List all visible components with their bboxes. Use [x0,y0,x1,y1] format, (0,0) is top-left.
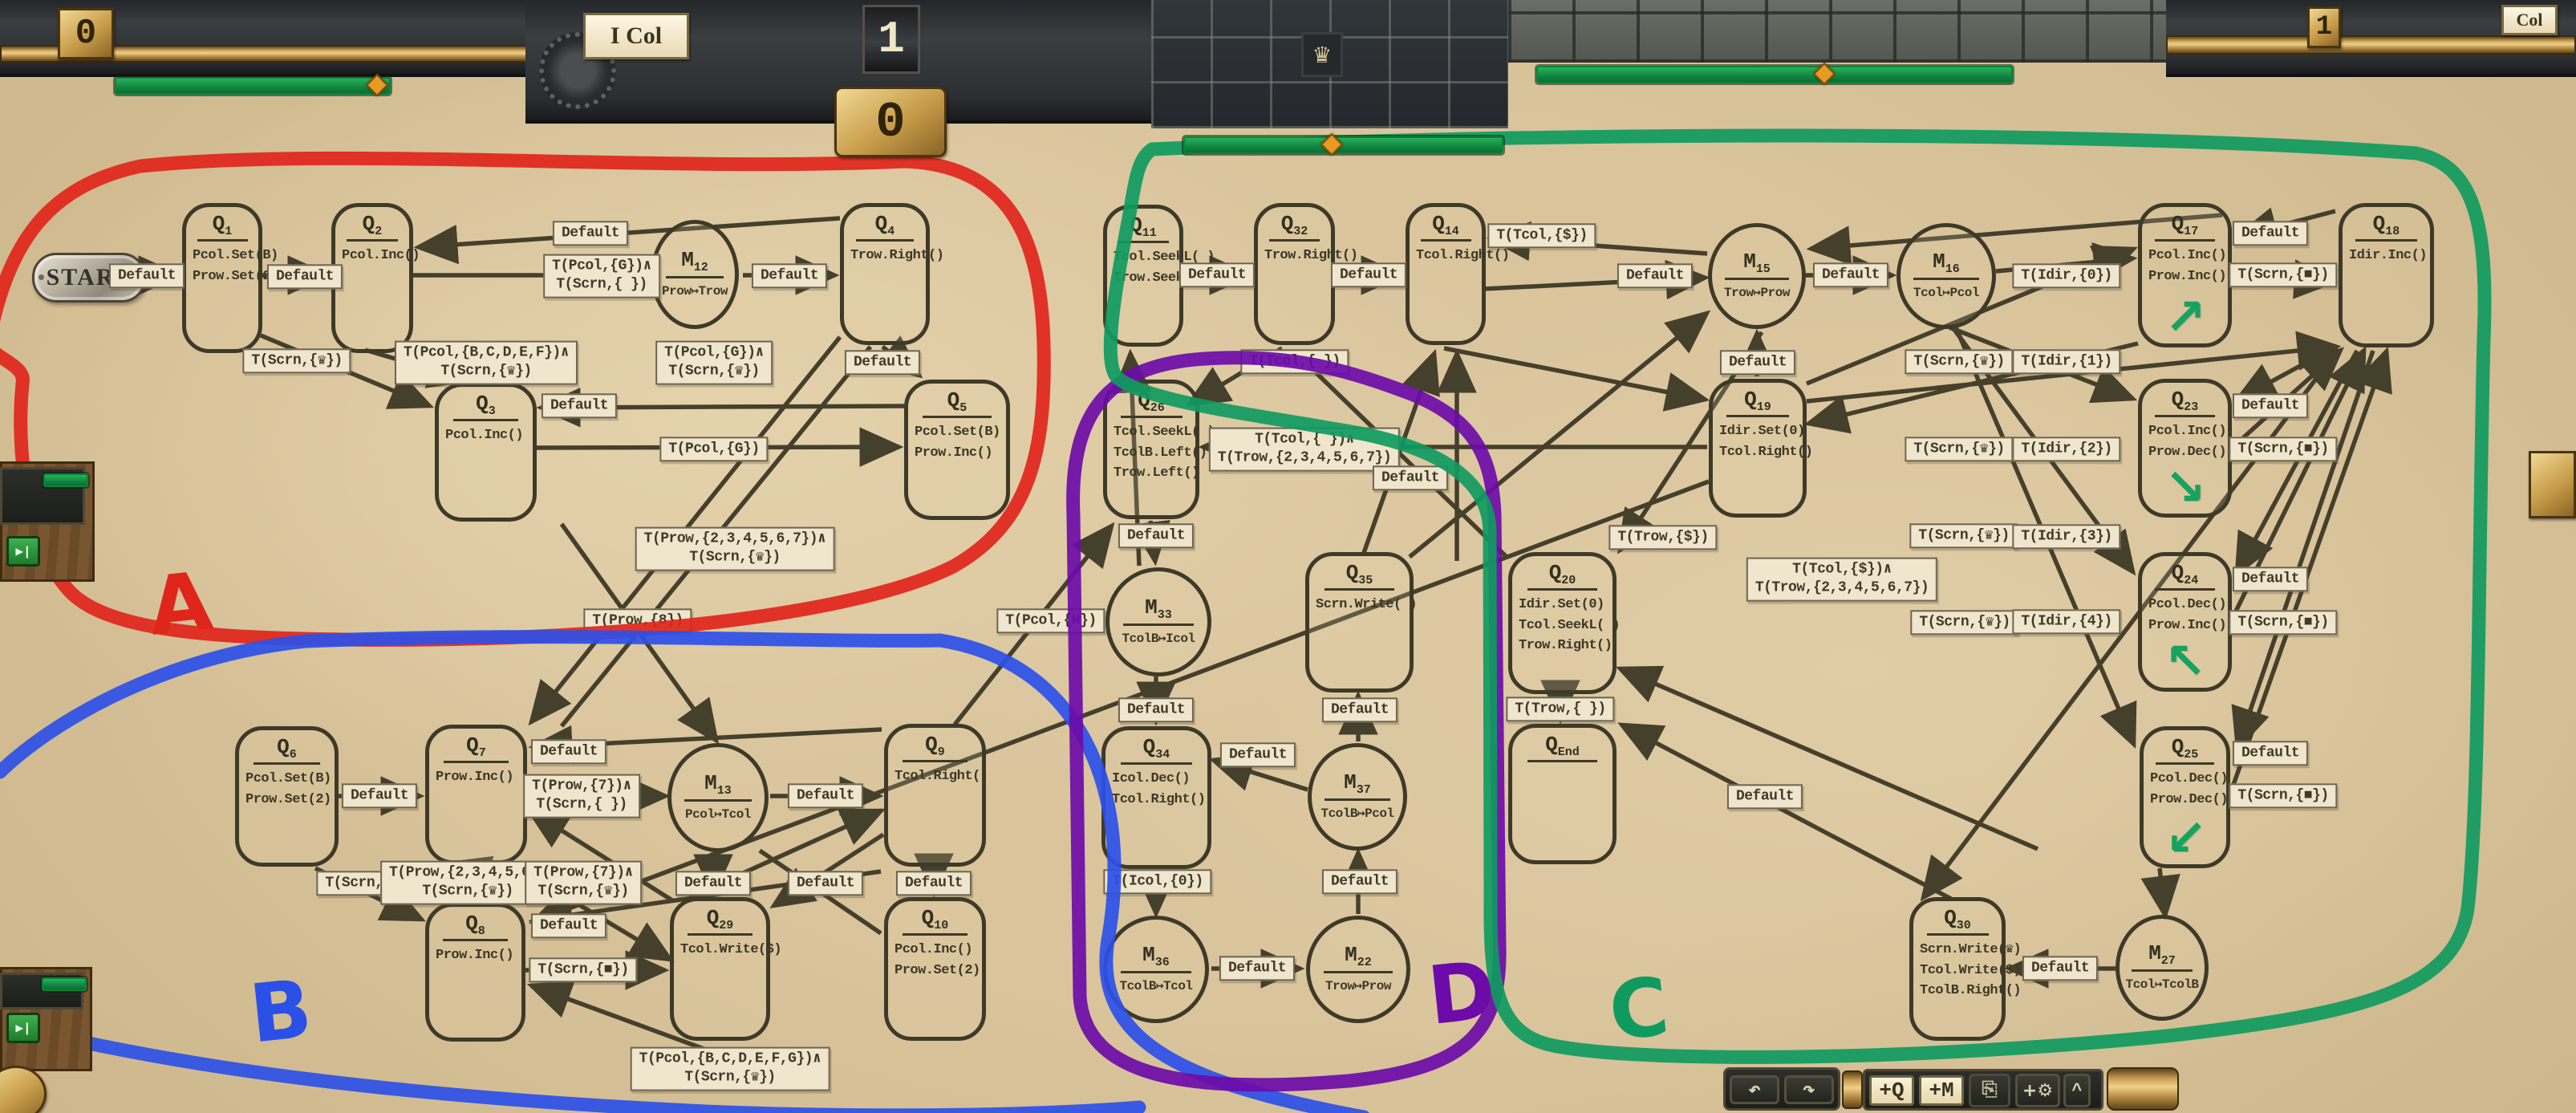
default-transition-label[interactable]: Default [1322,869,1398,894]
pipe-top-right [2166,35,2576,55]
default-transition-label[interactable]: Default [531,739,606,764]
node-operations: Trow.Right() [844,242,926,266]
node-operations: Tcol.SeekL( )TcolB.Left()Trow.Left() [1107,418,1195,484]
condition-label[interactable]: T(Pcol,{G}) [659,437,768,461]
node-Q35[interactable]: Q35Scrn.Write( ) [1305,552,1414,693]
condition-label[interactable]: T(Prow,{7})∧T(Scrn,{♛}) [525,861,642,905]
node-Q20[interactable]: Q20Idir.Set(0)Tcol.SeekL( )Trow.Right() [1508,552,1617,694]
condition-label[interactable]: T(Tcol,{ }) [1240,349,1349,374]
node-title: Q5 [923,388,991,418]
toolbar-joint [1842,1070,1863,1109]
condition-label[interactable]: T(Pcol,{B,C,D,E,F,G})∧T(Scrn,{♛}) [631,1047,830,1091]
node-operations: Pcol.Inc()Prow.Set(2) [888,936,982,981]
direction-arrow-annotation: ↙ [2165,813,2207,863]
node-operations: Idir.Set(0)Tcol.SeekL( )Trow.Right() [1512,591,1613,656]
condition-label[interactable]: T(Idir,{3}) [2012,524,2120,549]
node-M37[interactable]: M37TcolB↦Pcol [1308,743,1407,851]
default-transition-label[interactable]: Default [2233,221,2308,246]
condition-label[interactable]: T(Pcol,{G})∧T(Scrn,{ }) [543,254,660,299]
node-operations: Icol.Dec()Tcol.Right() [1105,765,1207,810]
node-title: Q2 [347,212,398,242]
node-title: Q3 [453,392,519,421]
condition-label[interactable]: T(Scrn,{♛}) [1905,437,2013,461]
condition-label[interactable]: T(Scrn,{■}) [529,957,637,982]
node-Q30[interactable]: Q30Scrn.Write(♛)Tcol.Write($)TcolB.Right… [1909,897,2006,1041]
node-operations: Scrn.Write(♛)Tcol.Write($)TcolB.Right() [1913,936,2002,1001]
node-title: Q10 [903,906,968,936]
condition-label[interactable]: T(Scrn,{♛}) [1909,523,2018,548]
transition-edge [1620,668,2038,849]
default-transition-label[interactable]: Default [553,221,628,246]
node-operations: Trow.Right() [1258,242,1331,266]
default-transition-label[interactable]: Default [342,783,417,808]
node-Q7[interactable]: Q7Prow.Inc() [425,725,527,864]
default-transition-label[interactable]: Default [1179,262,1255,287]
node-title: Q7 [444,733,509,763]
node-title: Q34 [1121,735,1192,765]
default-transition-label[interactable]: Default [1219,956,1295,981]
settings-button[interactable]: +⚙ [2015,1074,2060,1107]
crown-window: ♛ [1301,32,1343,77]
transition-edge [2237,346,2337,400]
condition-label[interactable]: T(Idir,{1}) [2012,349,2120,374]
condition-label[interactable]: T(Scrn,{♛}) [242,348,351,373]
clipboard-button[interactable]: ⎘ [1969,1074,2010,1107]
condition-label[interactable]: T(Scrn,{■}) [2229,262,2337,287]
column-plaque: I Col [583,13,689,59]
node-operations: Pcol.Set(B)Prow.Inc() [908,418,1006,463]
default-transition-label[interactable]: Default [788,871,863,896]
node-title: M13 [684,771,752,801]
gadget-left-bar [43,473,88,487]
default-transition-label[interactable]: Default [2233,393,2308,418]
condition-label[interactable]: T(Scrn,{♛}) [1910,610,2018,635]
condition-label[interactable]: T(Tcol,{ })∧T(Trow,{2,3,4,5,6,7}) [1209,428,1400,472]
node-M15[interactable]: M15Trow↦Prow [1708,223,1806,329]
node-operations: Prow↦Trow [662,278,728,301]
toolbar-end-cap [2107,1067,2179,1111]
node-title: Q20 [1527,561,1598,591]
node-operations: Pcol.Set(B)Prow.Set(2) [186,242,258,286]
node-title: Q1 [197,212,248,242]
node-Q17[interactable]: Q17Pcol.Inc()Prow.Inc()↗ [2138,203,2232,347]
node-title: M37 [1325,770,1390,800]
default-transition-label[interactable]: Default [1322,697,1398,722]
node-operations: TcolB↦Pcol [1320,801,1393,823]
node-title: M12 [666,248,724,278]
undo-button[interactable]: ↶ [1730,1075,1779,1104]
progress-bar-center [1183,136,1503,154]
node-Q2[interactable]: Q2Pcol.Inc() [331,203,413,353]
node-title: Q4 [856,212,913,242]
node-title: Q14 [1421,212,1471,242]
step-button-left[interactable]: ▶| [6,536,40,567]
default-transition-label[interactable]: Default [675,871,751,896]
transition-edge [1621,725,1951,899]
node-Q18[interactable]: Q18Idir.Inc() [2339,203,2434,347]
node-title: Q32 [1269,212,1320,242]
direction-arrow-annotation: ↖ [2164,636,2206,686]
node-operations: Pcol.Inc()Prow.Inc() [2142,242,2228,286]
game-canvas[interactable]: 0 I Col 1 0 ♛ 1 Col ▶| ▶| ↶ ↷ +Q +M ⎘ +⚙… [0,0,2576,1113]
node-operations: Tcol.Write($) [674,936,766,961]
node-Q6[interactable]: Q6Pcol.Set(B)Prow.Set(2) [235,726,339,867]
node-title: Q35 [1325,561,1395,591]
transition-edge [2160,868,2165,916]
default-transition-label[interactable]: Default [752,263,827,288]
node-operations: Pcol.Inc() [439,421,533,446]
node-operations: Prow.Inc() [429,941,521,966]
condition-label[interactable]: T(Prow,{8}) [583,608,692,633]
region-letter-B: B [246,969,315,1054]
default-transition-label[interactable]: Default [845,350,920,375]
gadget-right-edge [2529,451,2576,518]
condition-label[interactable]: T(Prow,{7})∧T(Scrn,{ }) [523,774,640,819]
node-Q11[interactable]: Q11Tcol.SeekL( )Trow.SeekL( ) [1103,205,1183,347]
node-operations: Trow↦Prow [1325,973,1391,996]
node-operations: Tcol↦TcolB [2125,972,2198,994]
node-M33[interactable]: M33TcolB↦Icol [1105,567,1211,676]
transition-edge [418,218,840,247]
default-transition-label[interactable]: Default [1373,465,1448,490]
direction-arrow-annotation: ↗ [2164,292,2206,342]
node-operations [1512,762,1613,766]
window-grid-light [1508,0,2166,63]
condition-label[interactable]: T(Idir,{4}) [2012,609,2120,634]
node-Q3[interactable]: Q3Pcol.Inc() [435,383,537,522]
condition-label[interactable]: T(Trow,{ }) [1506,697,1614,721]
node-operations: Tcol↦Pcol [1913,280,1979,303]
default-transition-label[interactable]: Default [2233,567,2308,591]
transition-edge [1444,348,1706,400]
transition-edge [1410,313,1707,557]
gadget-bl-bar [42,977,87,991]
default-transition-label[interactable]: Default [1331,262,1406,287]
condition-label[interactable]: T(Scrn,{■}) [2229,610,2337,635]
condition-label[interactable]: T(Idir,{2}) [2012,437,2120,461]
counter-left: 0 [58,8,114,59]
node-operations: Prow.Inc() [429,763,523,788]
default-transition-label[interactable]: Default [1118,523,1194,548]
condition-label[interactable]: T(Icol,{0}) [1103,869,1211,894]
transition-edge [2237,351,2357,574]
node-operations: TcolB↦Tcol [1119,973,1192,996]
node-Q1[interactable]: Q1Pcol.Set(B)Prow.Set(2) [182,203,262,353]
condition-label[interactable]: T(Scrn,{■}) [2229,783,2337,808]
node-Q10[interactable]: Q10Pcol.Inc()Prow.Set(2) [884,897,986,1041]
default-transition-label[interactable]: Default [267,264,343,289]
node-M27[interactable]: M27Tcol↦TcolB [2116,915,2209,1021]
node-M13[interactable]: M13Pcol↦Tcol [667,743,769,852]
node-title: Q29 [688,906,753,936]
node-Q32[interactable]: Q32Trow.Right() [1254,203,1335,345]
node-operations: Scrn.Write( ) [1309,591,1410,615]
node-operations: Tcol.Right() [888,762,982,787]
node-Q5[interactable]: Q5Pcol.Set(B)Prow.Inc() [904,380,1010,520]
condition-label[interactable]: T(Idir,{0}) [2012,263,2120,288]
node-operations: TcolB↦Icol [1122,626,1195,648]
node-operations: Pcol.Set(B)Prow.Set(2) [239,765,335,810]
condition-label[interactable]: T(Pcol,{G})∧T(Scrn,{♛}) [655,341,773,385]
wheel-digit-bottom: 0 [834,87,947,157]
node-title: M27 [2132,941,2193,971]
node-Q9[interactable]: Q9Tcol.Right() [884,724,986,867]
node-title: M16 [1913,250,1979,279]
redo-button[interactable]: ↷ [1784,1075,1834,1104]
node-M22[interactable]: M22Trow↦Prow [1306,916,1410,1023]
direction-arrow-annotation: ↘ [2164,462,2206,512]
node-title: M15 [1725,250,1790,279]
node-QEnd[interactable]: QEnd [1508,724,1617,864]
node-operations: Pcol.Inc()Prow.Dec() [2142,417,2228,462]
node-title: M22 [1324,943,1393,973]
node-operations: Pcol.Dec()Prow.Inc() [2142,591,2228,636]
default-transition-label[interactable]: Default [1727,784,1803,809]
node-Q26[interactable]: Q26Tcol.SeekL( )TcolB.Left()Trow.Left() [1103,380,1199,519]
node-operations: Idir.Inc() [2343,242,2430,266]
region-letter-D: D [1424,950,1499,1037]
node-Q34[interactable]: Q34Icol.Dec()Tcol.Right() [1101,726,1211,869]
condition-label[interactable]: T(Scrn,{■}) [2229,437,2337,461]
collapse-toolbar-button[interactable]: ^ [2063,1074,2091,1107]
node-Q14[interactable]: Q14Tcol.Right() [1406,203,1486,345]
node-operations: Idir.Set(0)Tcol.Right() [1713,417,1803,462]
counter-right: 1 [2307,6,2341,48]
condition-label[interactable]: T(Scrn,{♛}) [1905,349,2013,374]
node-title: Q19 [1726,388,1789,417]
condition-label[interactable]: T(Pcol,{B,C,D,E,F})∧T(Scrn,{♛}) [395,341,578,385]
node-title: Q23 [2155,388,2215,417]
node-title: Q17 [2155,212,2215,242]
node-Q4[interactable]: Q4Trow.Right() [840,203,930,345]
node-title: QEnd [1527,733,1598,762]
condition-label[interactable]: T(Tcol,{$})∧T(Trow,{2,3,4,5,6,7}) [1746,558,1937,602]
region-letter-A: A [145,561,215,648]
condition-label[interactable]: T(Tcol,{$}) [1487,223,1596,248]
default-transition-label[interactable]: Default [1118,697,1194,722]
node-Q8[interactable]: Q8Prow.Inc() [425,903,525,1042]
node-Q19[interactable]: Q19Idir.Set(0)Tcol.Right() [1709,379,1807,518]
default-transition-label[interactable]: Default [788,783,863,808]
add-state-button[interactable]: +Q [1869,1075,1914,1106]
node-title: Q8 [443,912,508,941]
node-operations: Tcol.SeekL( )Trow.SeekL( ) [1107,243,1179,288]
default-transition-label[interactable]: Default [1720,350,1795,375]
node-M16[interactable]: M16Tcol↦Pcol [1897,223,1996,329]
node-title: Q11 [1118,213,1169,243]
node-Q29[interactable]: Q29Tcol.Write($) [670,897,770,1041]
node-Q24[interactable]: Q24Pcol.Dec()Prow.Inc()↖ [2138,552,2232,692]
progress-bar-left [115,77,391,95]
crank-wheel[interactable] [0,1066,47,1113]
node-M12[interactable]: M12Prow↦Trow [651,220,739,329]
node-operations: Tcol.Right() [1410,242,1482,266]
wheel-digit-top: 1 [862,5,920,74]
node-title: Q24 [2155,561,2215,591]
default-transition-label[interactable]: Default [1617,263,1693,288]
node-title: Q18 [2355,212,2416,242]
node-title: Q25 [2156,735,2213,765]
node-M36[interactable]: M36TcolB↦Tcol [1103,916,1209,1023]
region-letter-C: C [1605,966,1672,1052]
node-title: Q26 [1121,388,1183,418]
node-title: Q30 [1927,906,1989,936]
step-button-bottom-left[interactable]: ▶| [6,1013,40,1043]
node-Q23[interactable]: Q23Pcol.Inc()Prow.Dec()↘ [2138,379,2232,518]
default-transition-label[interactable]: Default [2022,956,2098,981]
default-transition-label[interactable]: Default [109,263,185,288]
node-title: Q6 [254,735,320,765]
node-operations: Pcol.Dec()Prow.Dec() [2144,765,2226,810]
node-operations: Pcol↦Tcol [685,802,751,824]
default-transition-label[interactable]: Default [542,393,617,418]
node-operations: Trow↦Prow [1724,280,1790,303]
plaque-right: Col [2501,5,2558,35]
default-transition-label[interactable]: Default [896,871,972,896]
node-title: M33 [1123,595,1194,625]
node-title: Q9 [903,733,968,762]
progress-bar-right [1536,66,2013,83]
add-mover-button[interactable]: +M [1919,1075,1964,1106]
condition-label[interactable]: T(Pcol,{H}) [996,608,1105,633]
condition-label[interactable]: T(Prow,{2,3,4,5,6,7})∧T(Scrn,{♛}) [635,527,835,571]
node-title: M36 [1121,943,1191,973]
default-transition-label[interactable]: Default [531,913,606,938]
node-operations: Pcol.Inc() [335,242,409,266]
default-transition-label[interactable]: Default [1220,742,1296,767]
node-Q25[interactable]: Q25Pcol.Dec()Prow.Dec()↙ [2140,726,2230,868]
condition-label[interactable]: T(Trow,{$}) [1608,525,1717,550]
default-transition-label[interactable]: Default [2233,741,2308,766]
default-transition-label[interactable]: Default [1813,262,1888,287]
